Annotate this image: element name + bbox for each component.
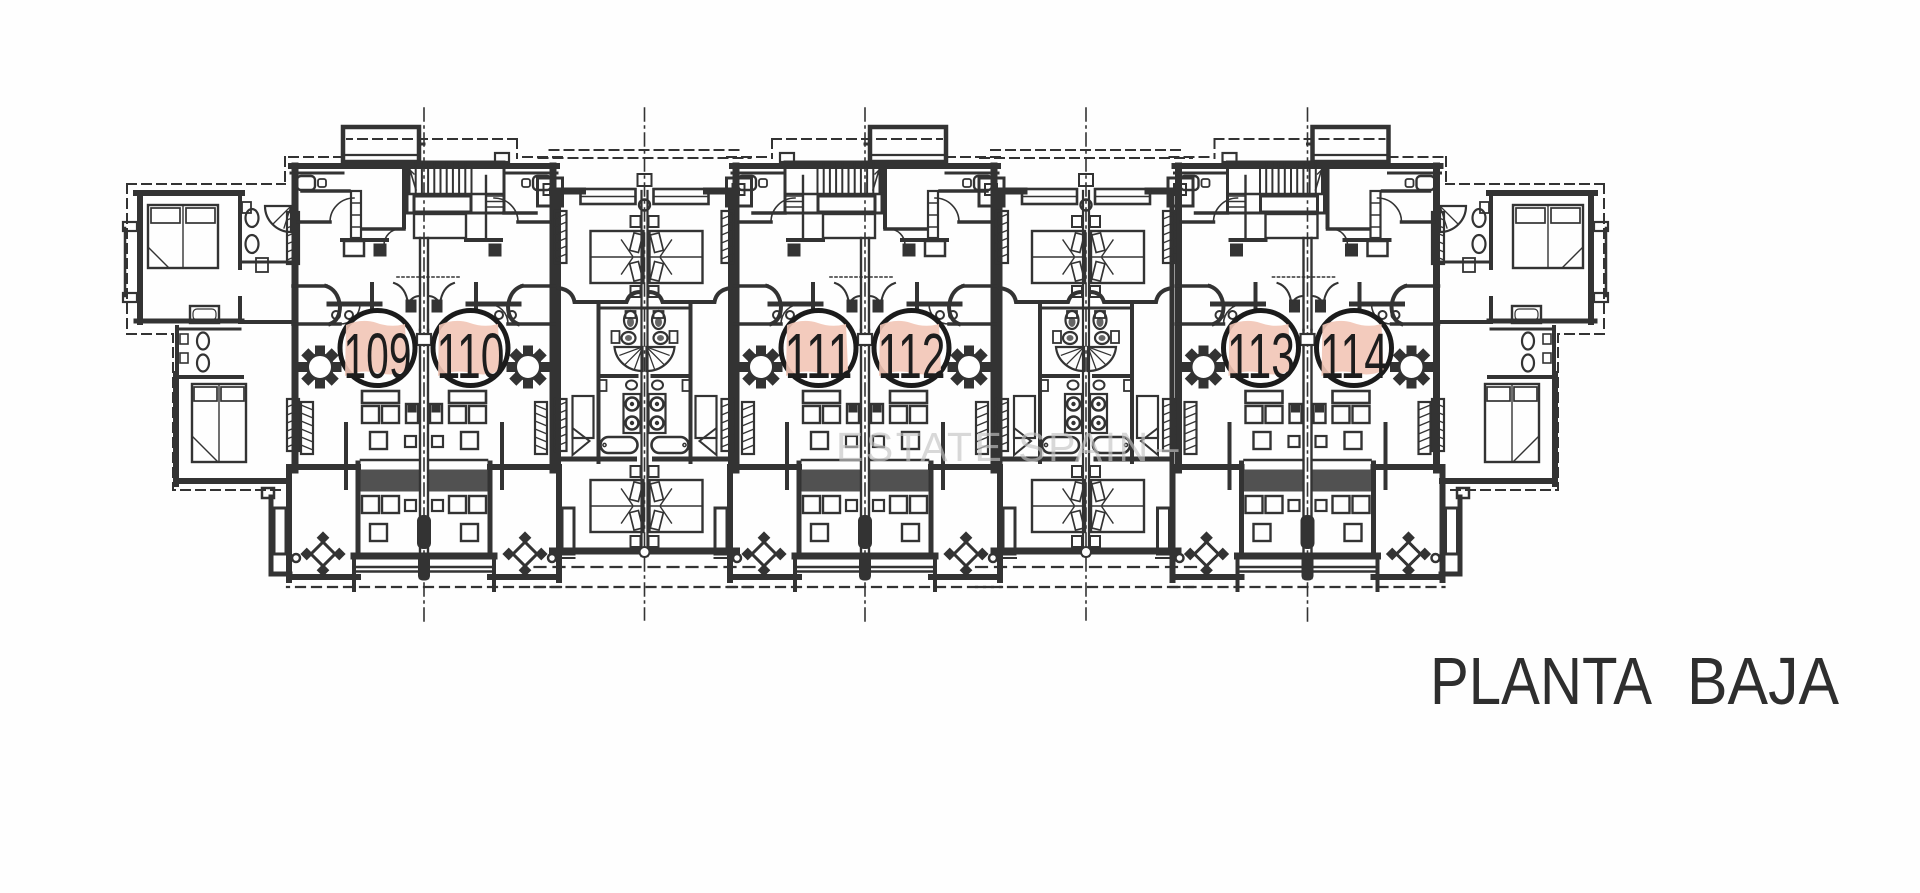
svg-text:113: 113 bbox=[1227, 320, 1295, 392]
svg-text:BAJA: BAJA bbox=[1687, 644, 1839, 719]
svg-text:109: 109 bbox=[344, 320, 412, 392]
svg-text:114: 114 bbox=[1320, 320, 1388, 392]
svg-text:111: 111 bbox=[785, 320, 853, 392]
svg-text:112: 112 bbox=[878, 320, 946, 392]
svg-text:110: 110 bbox=[437, 320, 505, 392]
svg-text:PLANTA: PLANTA bbox=[1430, 644, 1652, 719]
svg-text:ESTATE SPAIN–: ESTATE SPAIN– bbox=[836, 424, 1181, 470]
